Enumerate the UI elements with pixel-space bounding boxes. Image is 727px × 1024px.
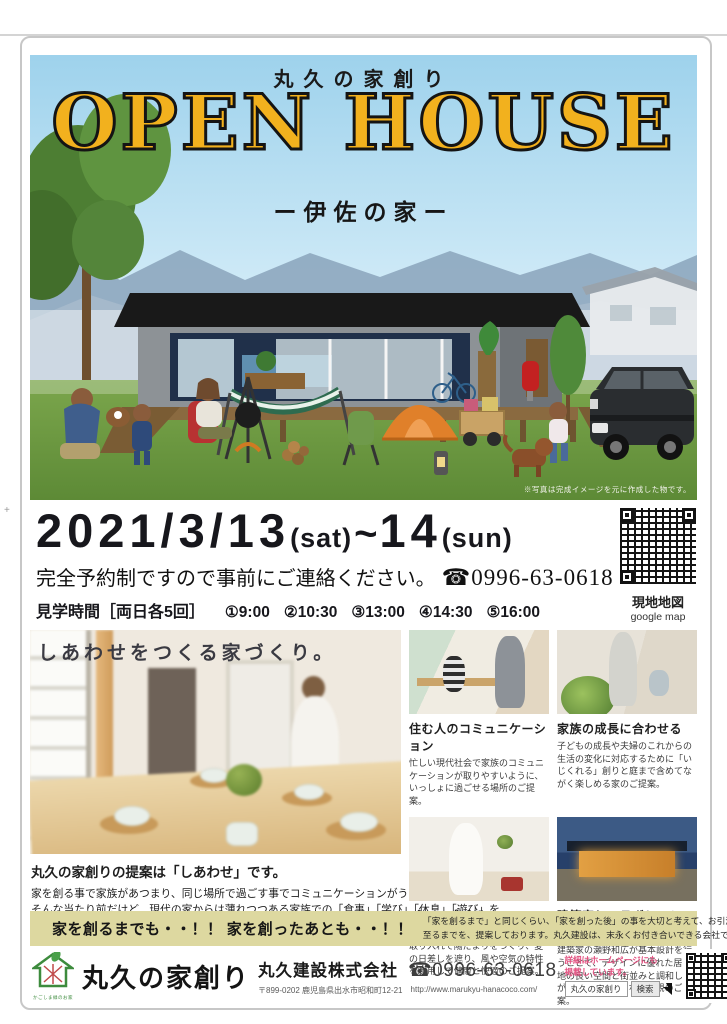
event-date-main: 2021/3/13 [36, 503, 290, 558]
event-date-tilde: ~ [354, 512, 377, 557]
hours-label: 見学時間［両日各5回］ [36, 598, 205, 622]
proposal-line: 家を創る事で家族があつまり、同じ場所で過ごす事でコミュニケーションがうまれ、笑顔… [31, 886, 403, 902]
photo-father [495, 636, 525, 708]
event-date: 2021/3/13 (sat) ~ 14 (sun) [36, 503, 611, 558]
photo-bowl [294, 784, 324, 800]
event-date-sun: (sun) [442, 523, 513, 554]
banner-body-line1: 「家を創るまで」と同じくらい、「家を創った後」の事を大切と考えて、お引渡後の保証… [423, 915, 727, 928]
visit-hours: 見学時間［両日各5回］ ①9:00 ②10:30 ③13:00 ④14:30 ⑤… [36, 598, 611, 622]
time-slot-3: ③13:00 [351, 603, 405, 622]
trim-mark: + [4, 506, 14, 516]
cursor-arrow-icon [662, 983, 674, 995]
logo-caption: かごしま緑のお家 [28, 995, 78, 1001]
feature-title: 家族の成長に合わせる [557, 720, 697, 737]
map-qr-code[interactable] [620, 508, 696, 584]
feature-photo-passive [409, 817, 549, 901]
proposal-title: 丸久の家創りの提案は「しあわせ」です。 [31, 861, 403, 881]
homepage-note-line1: 詳細はホームページにも [565, 955, 674, 966]
map-qr-sublabel: google map [618, 611, 698, 623]
photo-disclaimer: ※写真は完成イメージを元に作成した物です。 [524, 484, 691, 495]
banner-body: 「家を創るまで」と同じくらい、「家を創った後」の事を大切と考えて、お引渡後の保証… [423, 915, 727, 941]
footer-qr-code[interactable] [686, 953, 727, 999]
footer-brand: 丸久の家創り [82, 958, 250, 995]
qr-finder [686, 953, 696, 963]
qr-finder [682, 508, 696, 522]
subtitle-label: ー伊佐の家ー [30, 193, 697, 227]
feature-photo-architect [557, 817, 697, 901]
feature-card: 家族の成長に合わせる 子どもの成長や夫婦のこれからの生活の変化に対応するために「… [557, 630, 697, 807]
bench [245, 373, 305, 389]
reservation-note: 完全予約制ですので事前にご連絡ください。 [36, 562, 436, 591]
search-input[interactable]: 丸久の家創り [565, 981, 628, 997]
company-url[interactable]: http://www.marukyu-hanacoco.com/ [411, 985, 538, 996]
time-slot-4: ④14:30 [419, 603, 473, 622]
qr-finder [686, 989, 696, 999]
company-block: 丸久建設株式会社 ☎0996-63-0618 〒899-0202 鹿児島県出水市… [258, 957, 557, 996]
homepage-note-line2: 掲載しています。 [565, 967, 674, 978]
indoor-plant [256, 351, 276, 371]
footer: かごしま緑のお家 丸久の家創り 丸久建設株式会社 ☎0996-63-0618 〒… [28, 950, 699, 1002]
feature-body: 忙しい現代社会で家族のコミュニケーションが取りやすいように、いっしょに過ごせる場… [409, 757, 549, 807]
photo-watering-can [501, 877, 523, 891]
company-logo: かごしま緑のお家 [28, 952, 78, 1001]
after-service-banner: 家を創るまでも・・！！ 家を創ったあとも・・！！ 「家を創るまで」と同じくらい、… [30, 911, 697, 946]
photo-child [443, 656, 465, 692]
photo-doorway [148, 668, 196, 788]
photo-lit-interior [579, 851, 675, 877]
homepage-note-block: 詳細はホームページにも 掲載しています。 丸久の家創り 検索 [565, 955, 674, 997]
search-widget: 丸久の家創り 検索 [565, 981, 674, 997]
feature-title: 住む人のコミュニケーション [409, 720, 549, 754]
search-button[interactable]: 検索 [631, 981, 660, 997]
photo-plant [497, 835, 513, 849]
footer-phone[interactable]: ☎0996-63-0618 [408, 959, 557, 982]
open-house-title: OPEN HOUSE [30, 83, 697, 163]
photo-plant [561, 676, 615, 714]
palm-pot [478, 351, 496, 401]
reservation-line: 完全予約制ですので事前にご連絡ください。 ☎0996-63-0618 [36, 562, 611, 591]
photo-mother [609, 632, 637, 706]
hero-illustration: 丸久の家創り OPEN HOUSE ー伊佐の家ー ※写真は完成イメージを元に作成… [30, 55, 697, 500]
feature-body: 子どもの成長や夫婦のこれからの生活の変化に対応するために「いじくれる」創りと庭ま… [557, 740, 697, 790]
map-qr-block: 現地地図 google map [618, 508, 698, 623]
company-address: 〒899-0202 鹿児島県出水市昭和町12-21 [258, 985, 403, 996]
photo-roof [567, 841, 687, 851]
banner-headline: 家を創るまでも・・！！ 家を創ったあとも・・！！ [52, 918, 413, 939]
flyer-page: + [0, 0, 727, 1024]
feature-photo-growth [557, 630, 697, 714]
headlight [590, 399, 598, 409]
reservation-phone[interactable]: ☎0996-63-0618 [442, 565, 614, 591]
qr-finder [620, 508, 634, 522]
photo-person [449, 823, 483, 895]
banner-body-line2: 至るまでを、提案しております。丸久建設は、末永くお付き合いできる会社です！！ [423, 929, 727, 942]
photo-child [649, 670, 669, 696]
time-slot-1: ①9:00 [225, 603, 270, 622]
company-name: 丸久建設株式会社 [258, 957, 398, 981]
kitchen-caption: しあわせをつくる家づくり。 [38, 638, 336, 665]
event-info: 2021/3/13 (sat) ~ 14 (sun) 完全予約制ですので事前にご… [36, 503, 611, 622]
photo-bowl [114, 806, 150, 826]
license-plate [592, 423, 608, 433]
house-logo-icon [32, 952, 74, 990]
photo-moss-ball [226, 764, 262, 796]
qr-finder [722, 953, 727, 963]
time-slot-2: ②10:30 [284, 603, 338, 622]
event-date-day2: 14 [379, 503, 441, 558]
photo-bowl [340, 812, 378, 832]
time-slot-5: ⑤16:00 [486, 603, 540, 622]
photo-cup [226, 822, 258, 846]
event-date-sat: (sat) [290, 523, 352, 554]
qr-finder [620, 570, 634, 584]
lantern [434, 451, 448, 475]
map-qr-label: 現地地図 [618, 592, 698, 611]
kitchen-photo: しあわせをつくる家づくり。 [30, 630, 401, 854]
photo-bowl [200, 768, 228, 783]
feature-photo-communication [409, 630, 549, 714]
feature-card: 住む人のコミュニケーション 忙しい現代社会で家族のコミュニケーションが取りやすい… [409, 630, 549, 807]
